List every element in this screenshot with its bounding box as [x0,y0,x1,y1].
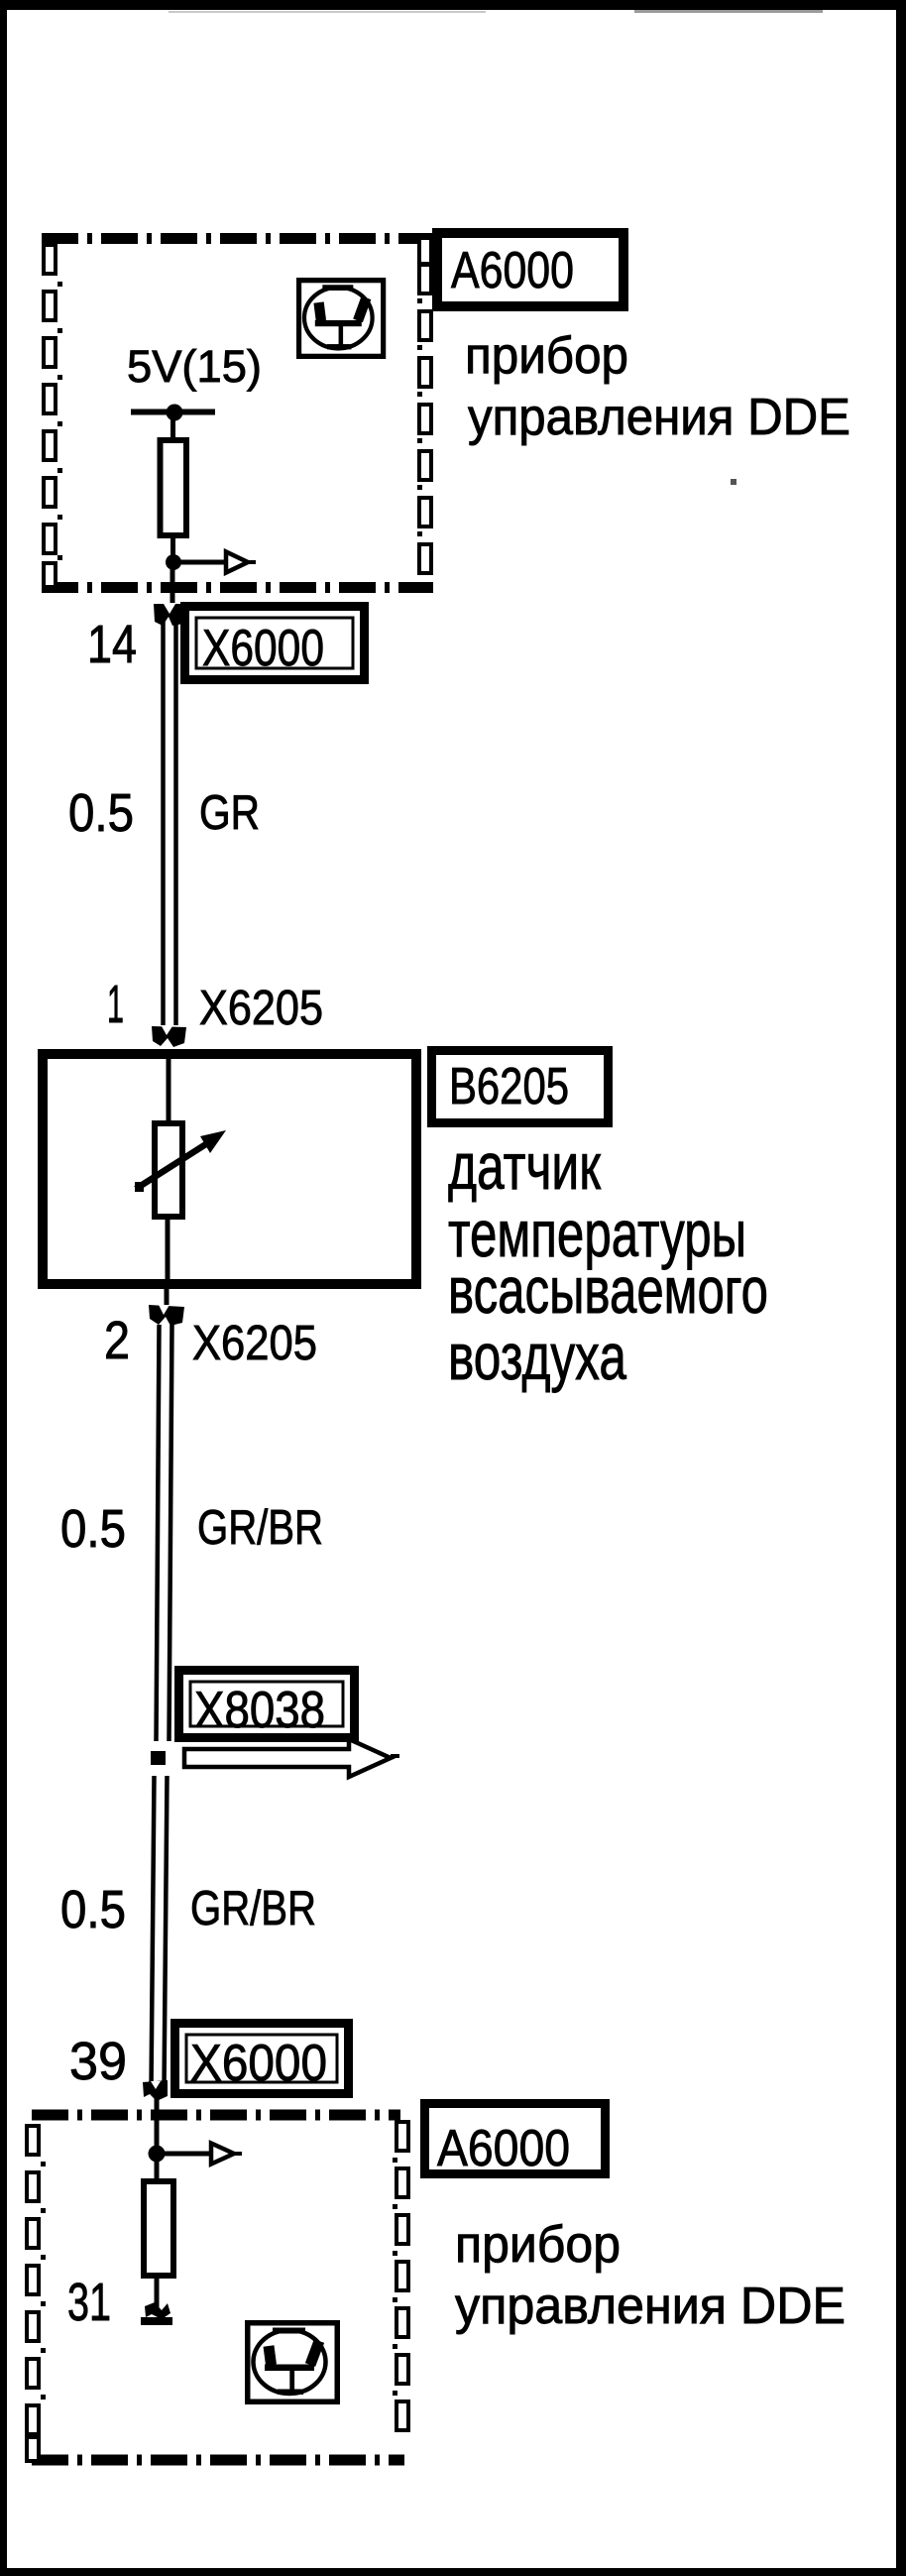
svg-text:управления DDE: управления DDE [455,2278,846,2335]
svg-text:2: 2 [104,1311,130,1370]
svg-text:GR/BR: GR/BR [190,1882,316,1935]
svg-text:X8038: X8038 [194,1682,325,1739]
svg-text:31: 31 [67,2273,111,2332]
svg-text:5V(15): 5V(15) [127,341,262,392]
svg-text:X6205: X6205 [199,982,323,1035]
svg-text:управления DDE: управления DDE [468,389,850,446]
svg-text:датчик: датчик [448,1129,602,1203]
svg-text:0.5: 0.5 [68,783,134,843]
svg-text:A6000: A6000 [451,242,574,299]
svg-text:0.5: 0.5 [60,1880,126,1939]
svg-text:X6000: X6000 [202,620,324,677]
svg-text:B6205: B6205 [449,1058,569,1115]
svg-text:39: 39 [69,2032,127,2091]
svg-text:всасываемого: всасываемого [448,1253,768,1327]
svg-text:14: 14 [87,615,137,674]
svg-text:X6000: X6000 [190,2035,327,2092]
svg-text:GR/BR: GR/BR [197,1501,323,1555]
svg-text:A6000: A6000 [437,2120,570,2177]
svg-text:1: 1 [107,975,124,1034]
svg-text:GR: GR [199,786,260,840]
svg-text:прибор: прибор [465,327,628,385]
svg-text:прибор: прибор [455,2216,621,2274]
svg-text:воздуха: воздуха [448,1320,626,1393]
svg-text:0.5: 0.5 [60,1499,126,1559]
svg-text:X6205: X6205 [192,1317,317,1370]
